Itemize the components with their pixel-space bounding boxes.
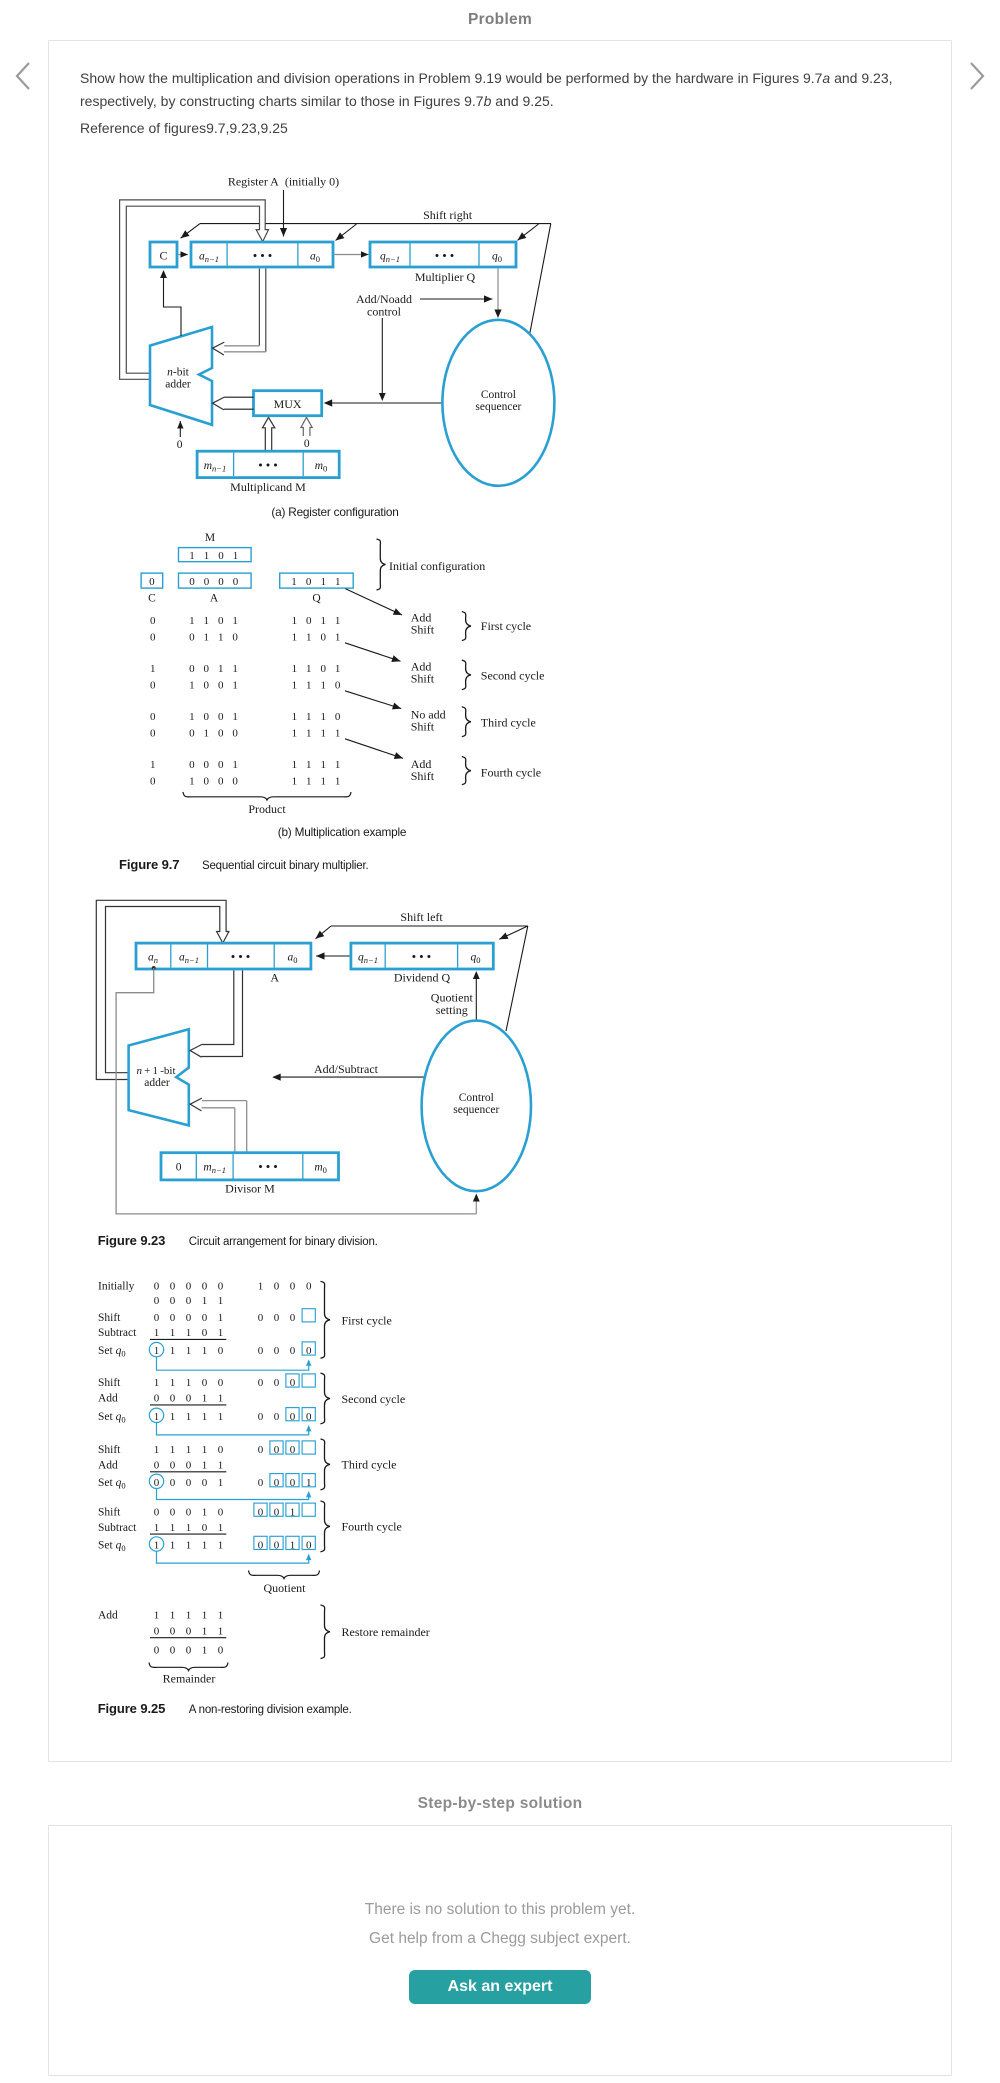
svg-text:0: 0 <box>150 775 156 787</box>
svg-text:control: control <box>367 305 402 319</box>
svg-text:11111: 11111 <box>154 1411 224 1423</box>
svg-text:0: 0 <box>258 1477 264 1489</box>
svg-text:11100: 11100 <box>154 1377 224 1389</box>
svg-text:0: 0 <box>274 1477 280 1489</box>
svg-text:sequencer: sequencer <box>475 401 521 413</box>
svg-text:Second cycle: Second cycle <box>342 1392 406 1406</box>
svg-text:11101: 11101 <box>154 1327 224 1339</box>
svg-text:Set q0: Set q0 <box>98 1477 126 1491</box>
svg-text:Shift: Shift <box>98 1444 121 1456</box>
svg-text:1: 1 <box>306 1477 312 1489</box>
svg-text:Subtract: Subtract <box>98 1327 137 1339</box>
svg-text:Shift: Shift <box>98 1506 121 1518</box>
svg-text:0100: 0100 <box>189 727 238 739</box>
svg-text:1111: 1111 <box>292 775 341 787</box>
svg-text:0: 0 <box>274 1444 280 1456</box>
svg-text:00010: 00010 <box>154 1506 224 1518</box>
svg-text:1111: 1111 <box>292 759 341 771</box>
svg-text:1: 1 <box>150 759 156 771</box>
svg-text:Figure 9.25A non-restoring div: Figure 9.25A non-restoring division exam… <box>98 1701 352 1716</box>
svg-text:0: 0 <box>274 1312 280 1324</box>
svg-text:Figure 9.23Circuit arrangement: Figure 9.23Circuit arrangement for binar… <box>98 1233 378 1248</box>
svg-text:0: 0 <box>176 1162 182 1174</box>
svg-text:11101: 11101 <box>154 1522 224 1534</box>
svg-text:0: 0 <box>258 1312 264 1324</box>
svg-text:0: 0 <box>274 1345 280 1357</box>
svg-text:adder: adder <box>144 1077 170 1089</box>
svg-text:C: C <box>159 249 167 263</box>
svg-text:11110: 11110 <box>154 1345 224 1357</box>
svg-text:11110: 11110 <box>154 1444 224 1456</box>
svg-text:Fourth cycle: Fourth cycle <box>342 1520 402 1534</box>
svg-text:A: A <box>270 971 279 985</box>
svg-text:0: 0 <box>306 1280 312 1292</box>
svg-text:0: 0 <box>258 1411 264 1423</box>
svg-text:Set q0: Set q0 <box>98 1540 126 1554</box>
svg-text:0011: 0011 <box>189 663 238 675</box>
svg-text:0: 0 <box>258 1444 264 1456</box>
svg-text:Second cycle: Second cycle <box>481 669 545 683</box>
svg-text:0: 0 <box>274 1540 280 1552</box>
svg-text:Shift: Shift <box>411 623 435 637</box>
svg-text:0: 0 <box>258 1540 264 1552</box>
svg-text:Q: Q <box>312 593 321 605</box>
svg-text:Fourth cycle: Fourth cycle <box>481 765 541 779</box>
svg-text:1111: 1111 <box>292 727 341 739</box>
svg-text:0: 0 <box>290 1444 296 1456</box>
svg-text:0: 0 <box>258 1345 264 1357</box>
svg-text:1: 1 <box>290 1540 296 1552</box>
svg-text:00011: 00011 <box>154 1460 224 1472</box>
svg-text:n-bit: n-bit <box>167 367 190 379</box>
svg-text:0: 0 <box>306 1540 312 1552</box>
svg-text:Set q0: Set q0 <box>98 1345 126 1359</box>
svg-text:1: 1 <box>290 1506 296 1518</box>
svg-text:0: 0 <box>150 631 156 643</box>
svg-text:0: 0 <box>306 1411 312 1423</box>
svg-text:Shift: Shift <box>411 769 435 783</box>
svg-text:1101: 1101 <box>189 615 238 627</box>
svg-text:MUX: MUX <box>274 397 302 411</box>
svg-text:Shift: Shift <box>98 1312 121 1324</box>
svg-text:Set q0: Set q0 <box>98 1411 126 1425</box>
svg-text:0: 0 <box>290 1280 296 1292</box>
svg-text:0: 0 <box>290 1345 296 1357</box>
svg-text:0: 0 <box>258 1506 264 1518</box>
svg-text:adder: adder <box>165 379 191 391</box>
svg-text:1101: 1101 <box>292 663 341 675</box>
svg-text:Add: Add <box>98 1610 118 1622</box>
svg-text:Shift: Shift <box>98 1377 121 1389</box>
svg-text:0: 0 <box>177 439 183 451</box>
svg-text:0: 0 <box>304 438 310 450</box>
svg-text:(b) Multiplication example: (b) Multiplication example <box>278 825 407 839</box>
svg-text:1011: 1011 <box>292 615 341 627</box>
svg-text:(a) Register configuration: (a) Register configuration <box>271 505 398 519</box>
svg-text:First cycle: First cycle <box>481 619 531 633</box>
svg-text:1000: 1000 <box>189 775 238 787</box>
svg-text:Third cycle: Third cycle <box>342 1458 397 1472</box>
svg-text:Divisor M: Divisor M <box>225 1182 275 1196</box>
svg-text:Multiplicand M: Multiplicand M <box>230 480 306 494</box>
svg-text:Quotient: Quotient <box>264 1581 307 1595</box>
svg-text:00010: 00010 <box>154 1645 224 1657</box>
svg-text:1: 1 <box>258 1280 264 1292</box>
svg-text:n + 1 -bit: n + 1 -bit <box>136 1065 175 1077</box>
svg-text:0: 0 <box>274 1377 280 1389</box>
svg-text:0: 0 <box>290 1411 296 1423</box>
svg-text:0: 0 <box>290 1477 296 1489</box>
svg-text:1001: 1001 <box>189 711 238 723</box>
svg-text:0: 0 <box>290 1312 296 1324</box>
svg-text:0: 0 <box>150 615 156 627</box>
svg-text:0: 0 <box>274 1280 280 1292</box>
svg-text:1110: 1110 <box>292 679 341 691</box>
svg-text:0: 0 <box>258 1377 264 1389</box>
svg-text:Restore remainder: Restore remainder <box>342 1625 430 1639</box>
svg-text:00011: 00011 <box>154 1626 224 1638</box>
svg-text:0: 0 <box>274 1506 280 1518</box>
svg-text:Shift: Shift <box>411 672 435 686</box>
svg-text:Product: Product <box>248 802 286 816</box>
svg-text:Shift: Shift <box>411 719 435 733</box>
svg-text:Third cycle: Third cycle <box>481 716 536 730</box>
svg-text:Subtract: Subtract <box>98 1522 137 1534</box>
svg-text:0: 0 <box>306 1345 312 1357</box>
svg-text:Control: Control <box>481 389 516 401</box>
svg-text:setting: setting <box>436 1003 468 1017</box>
svg-text:00001: 00001 <box>154 1477 224 1489</box>
svg-text:Add: Add <box>98 1460 118 1472</box>
svg-text:00011: 00011 <box>154 1393 224 1405</box>
svg-text:sequencer: sequencer <box>453 1104 499 1116</box>
svg-text:First cycle: First cycle <box>342 1314 392 1328</box>
svg-text:1101: 1101 <box>292 631 341 643</box>
svg-text:1001: 1001 <box>189 679 238 691</box>
svg-text:1: 1 <box>150 663 156 675</box>
svg-text:0: 0 <box>274 1411 280 1423</box>
svg-text:0: 0 <box>150 679 156 691</box>
svg-text:00001: 00001 <box>154 1312 224 1324</box>
svg-text:Shift left: Shift left <box>400 910 443 924</box>
svg-text:1110: 1110 <box>292 711 341 723</box>
svg-text:00011: 00011 <box>154 1295 224 1307</box>
svg-text:Initial configuration: Initial configuration <box>389 559 485 573</box>
svg-text:Dividend Q: Dividend Q <box>394 971 451 985</box>
svg-text:0: 0 <box>290 1377 296 1389</box>
svg-text:0001: 0001 <box>189 759 238 771</box>
svg-text:Figure 9.7Sequential circuit b: Figure 9.7Sequential circuit binary mult… <box>119 857 368 872</box>
svg-text:Add: Add <box>98 1393 118 1405</box>
svg-text:00000: 00000 <box>154 1280 224 1292</box>
svg-text:C: C <box>148 593 156 605</box>
svg-text:0: 0 <box>149 576 155 588</box>
svg-text:0: 0 <box>150 727 156 739</box>
svg-text:0: 0 <box>150 711 156 723</box>
svg-text:Initially: Initially <box>98 1280 135 1292</box>
svg-text:11111: 11111 <box>154 1540 224 1552</box>
svg-text:Add/Subtract: Add/Subtract <box>314 1062 379 1076</box>
svg-text:0110: 0110 <box>189 631 238 643</box>
svg-text:Shift right: Shift right <box>423 208 473 222</box>
svg-text:Register A (initially 0): Register A (initially 0) <box>228 174 339 188</box>
svg-text:Control: Control <box>459 1092 494 1104</box>
svg-text:Multiplier Q: Multiplier Q <box>415 270 476 284</box>
svg-text:A: A <box>210 593 219 605</box>
svg-text:11111: 11111 <box>154 1610 224 1622</box>
svg-text:Remainder: Remainder <box>163 1672 216 1686</box>
svg-text:M: M <box>205 532 215 544</box>
